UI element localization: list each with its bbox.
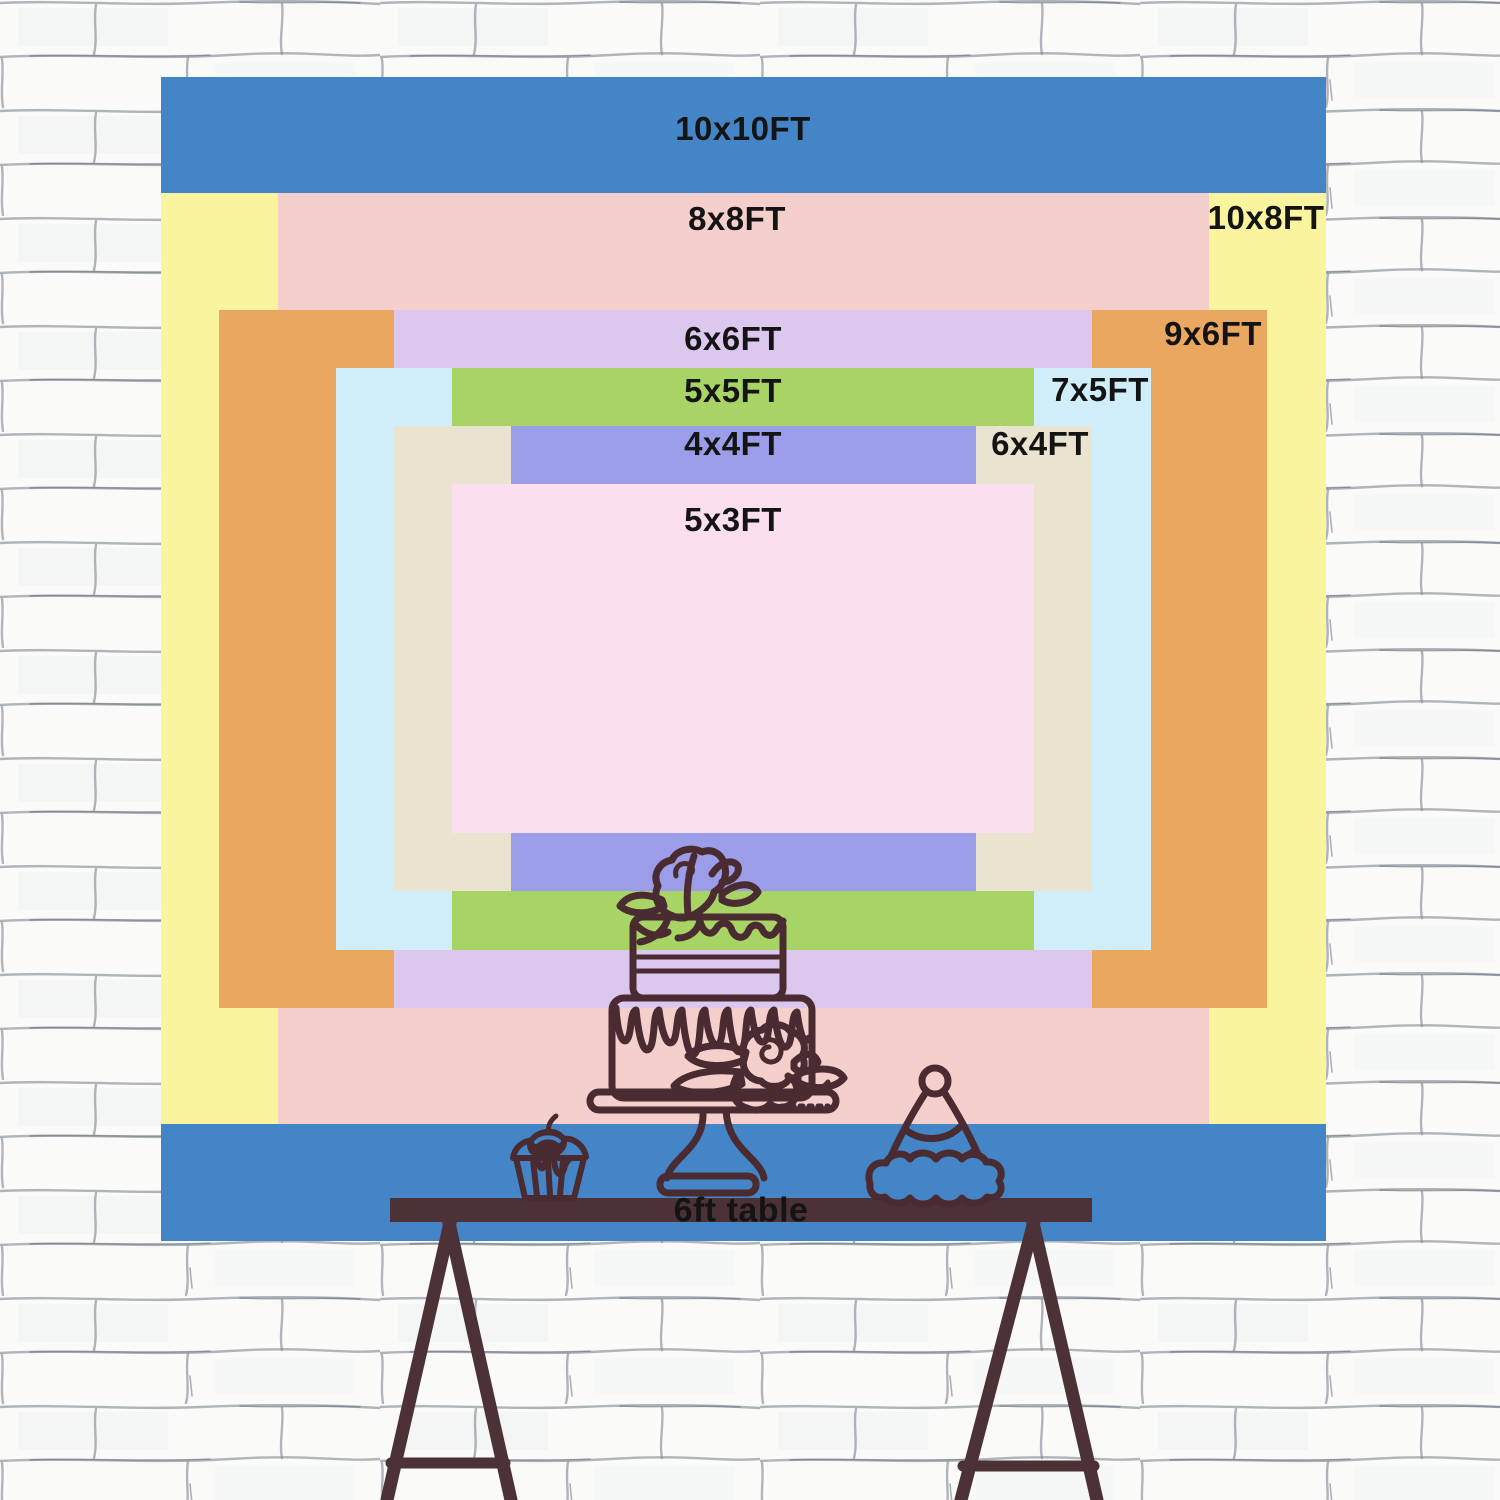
size-label-8x8ft: 8x8FT bbox=[688, 200, 786, 238]
size-label-10x10ft: 10x10FT bbox=[675, 110, 811, 148]
size-label-5x3ft: 5x3FT bbox=[684, 501, 782, 539]
trestle-table-illustration bbox=[387, 1198, 1097, 1500]
size-label-9x6ft: 9x6FT bbox=[1164, 315, 1262, 353]
size-label-6x4ft: 6x4FT bbox=[991, 425, 1089, 463]
table-size-label: 6ft table bbox=[674, 1192, 809, 1231]
size-label-10x8ft: 10x8FT bbox=[1208, 199, 1325, 237]
backdrop-size-chart: 10x10FT 10x8FT 8x8FT 9x6FT 6x6FT 7x5FT 5… bbox=[0, 0, 1500, 1500]
size-label-5x5ft: 5x5FT bbox=[684, 372, 782, 410]
cake-illustration bbox=[590, 849, 844, 1193]
cupcake-illustration bbox=[513, 1116, 586, 1198]
size-label-6x6ft: 6x6FT bbox=[684, 320, 782, 358]
size-label-7x5ft: 7x5FT bbox=[1051, 371, 1149, 409]
size-label-4x4ft: 4x4FT bbox=[684, 425, 782, 463]
party-hat-illustration bbox=[869, 1068, 1001, 1204]
